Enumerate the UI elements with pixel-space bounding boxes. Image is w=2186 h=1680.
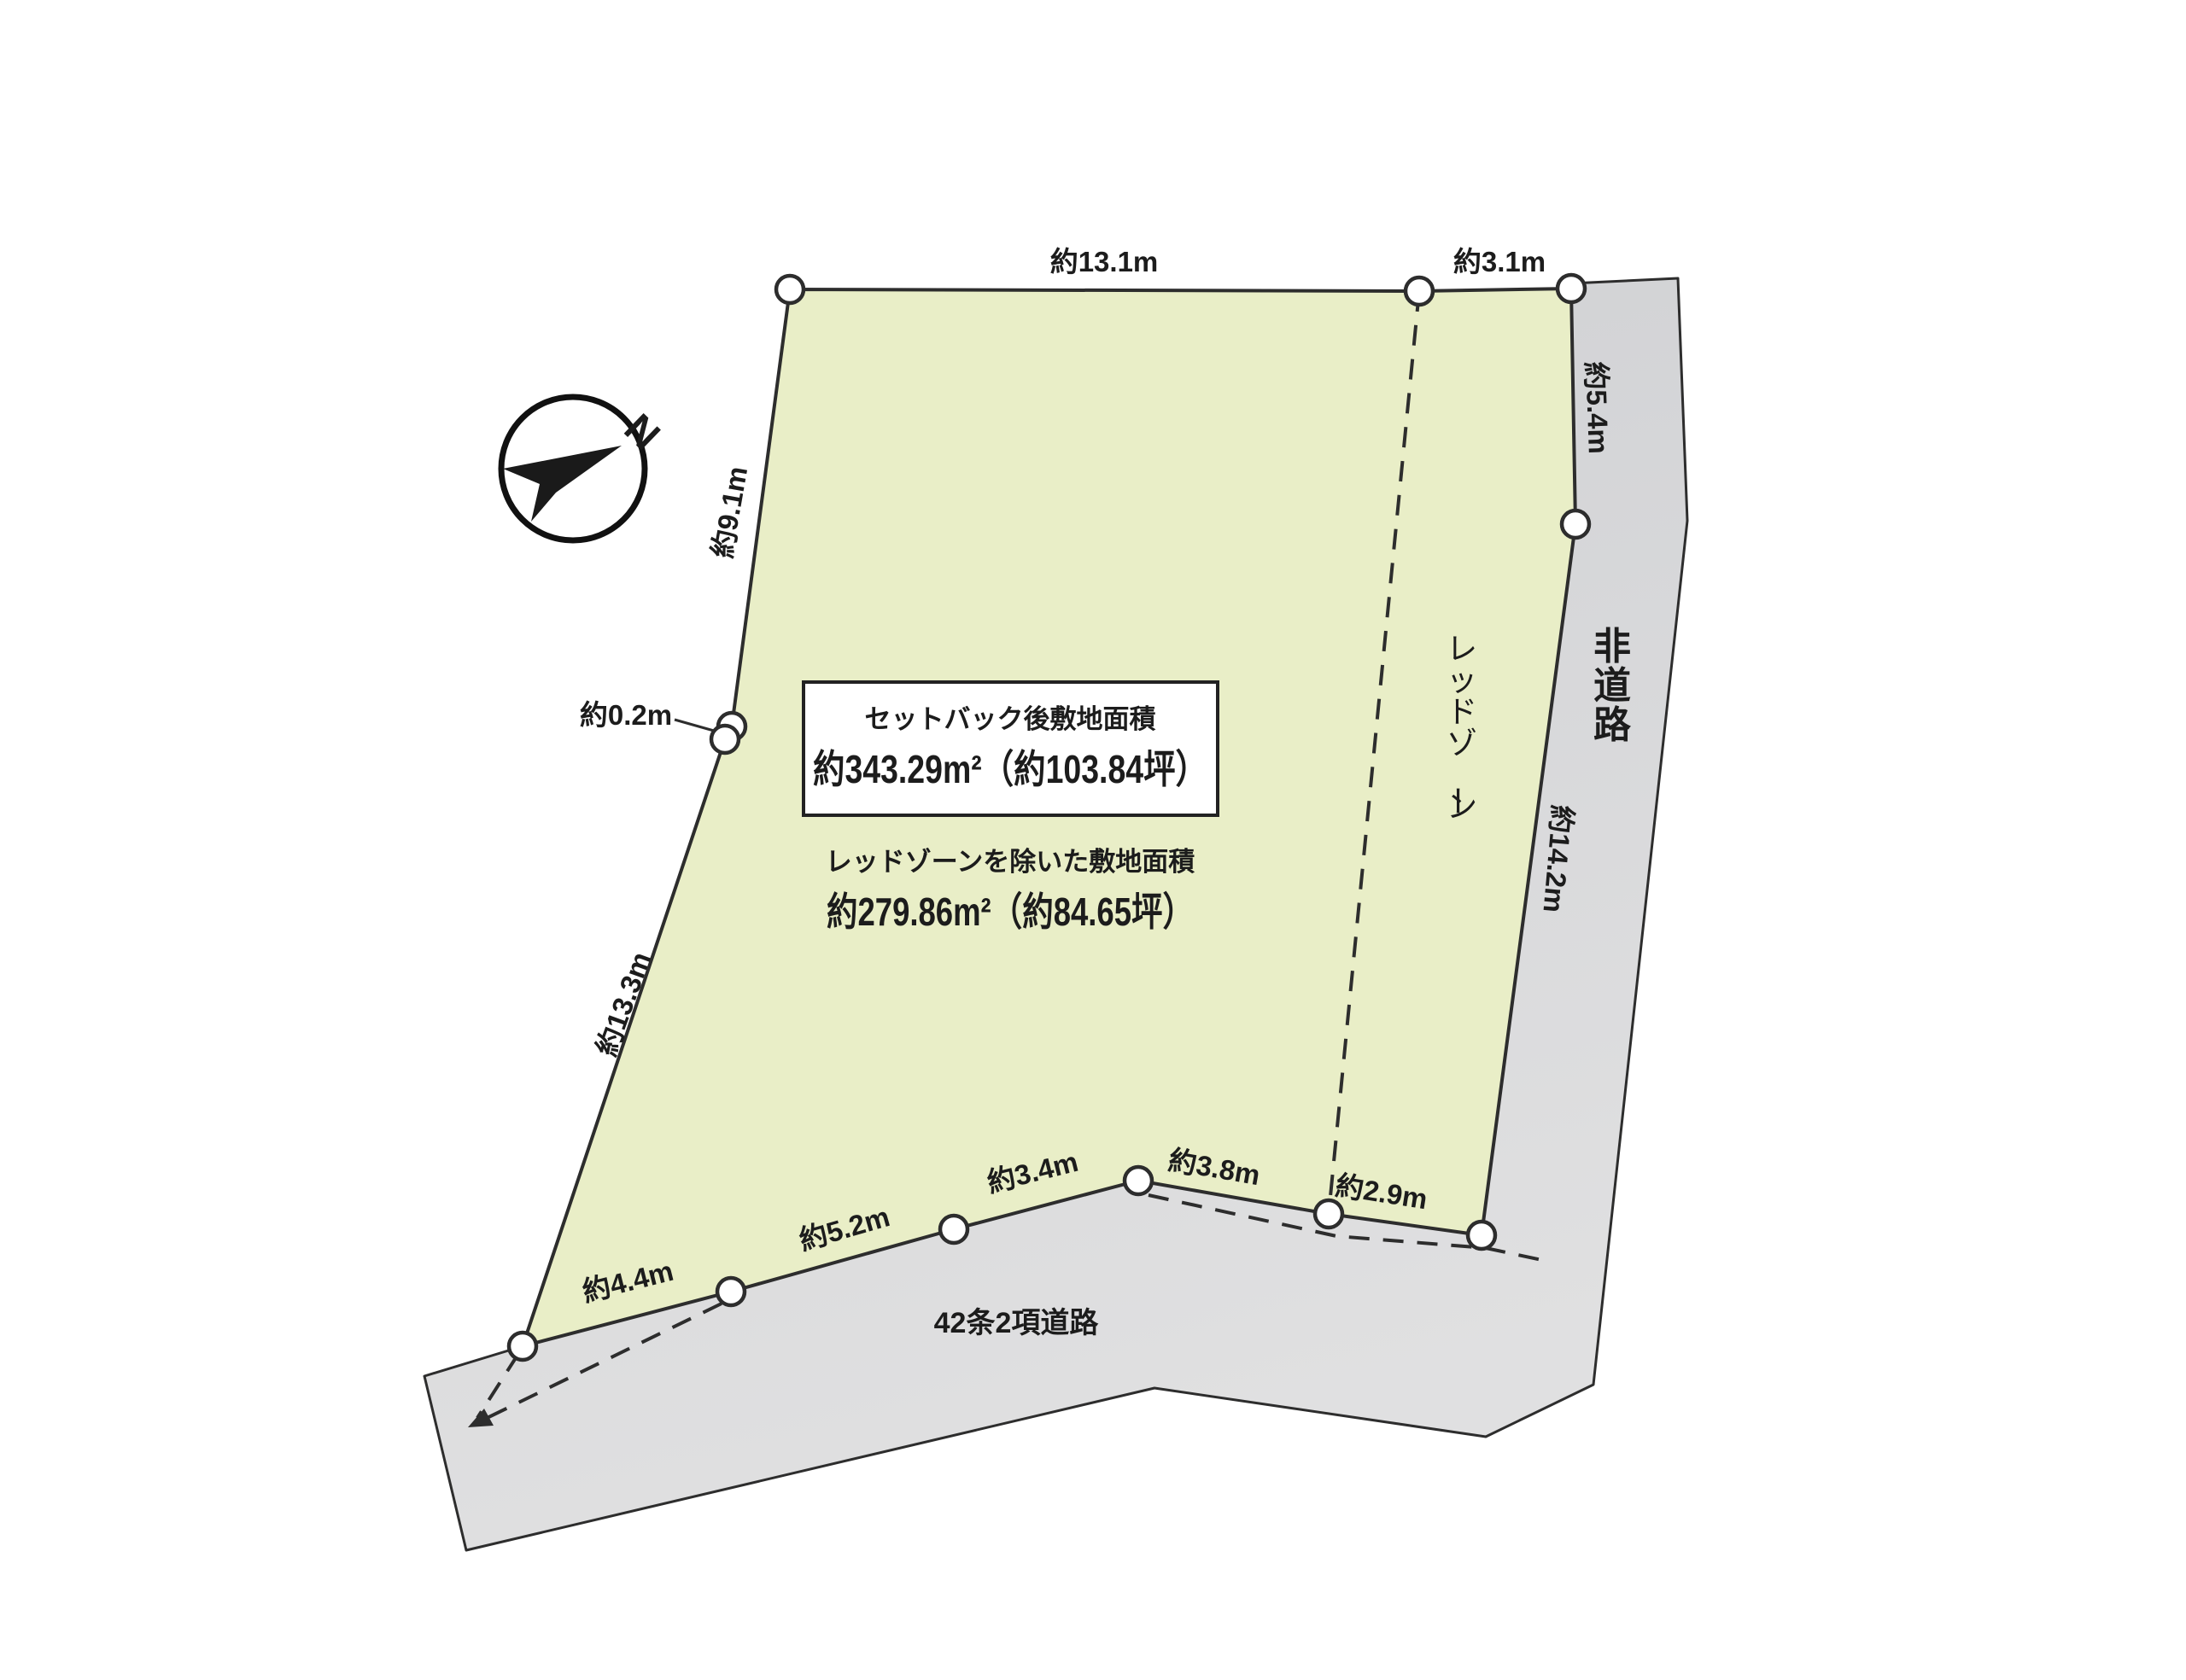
north-compass: N — [501, 397, 669, 540]
dim-label-left-upper: 約9.1m — [706, 464, 753, 561]
site-plan-diagram: 約13.1m 約3.1m 約5.4m 約14.2m 約9.1m 約0.2m 約1… — [0, 0, 2186, 1680]
vertex-marker — [717, 1278, 745, 1305]
redzone-excluded-area-title: レッドゾーンを除いた敷地面積 — [826, 847, 1195, 877]
dim-label-right-upper: 約5.4m — [1580, 361, 1615, 454]
road-label-bottom: 42条2項道路 — [934, 1307, 1100, 1339]
vertex-marker — [509, 1333, 536, 1360]
setback-area-value: 約343.29m²（約103.84坪） — [813, 747, 1207, 791]
vertex-marker — [1468, 1222, 1495, 1249]
vertex-marker — [711, 726, 739, 753]
vertex-marker — [1315, 1200, 1342, 1228]
dim-label-top-main: 約13.1m — [1050, 246, 1159, 277]
vertex-marker — [940, 1216, 967, 1243]
setback-area-title: セットバック後敷地面積 — [865, 704, 1156, 734]
road-label-right: 非道路 — [1593, 626, 1632, 746]
vertex-marker — [1406, 277, 1433, 305]
redzone-excluded-area-value: 約279.86m²（約84.65坪） — [827, 890, 1194, 934]
site-plan-page: 約13.1m 約3.1m 約5.4m 約14.2m 約9.1m 約0.2m 約1… — [0, 0, 2186, 1680]
vertex-marker — [1558, 275, 1585, 302]
vertex-marker — [1562, 510, 1589, 538]
vertex-marker — [776, 276, 804, 303]
vertex-marker — [1125, 1167, 1152, 1194]
dim-label-top-right: 約3.1m — [1453, 246, 1546, 277]
dim-label-left-jog: 約0.2m — [580, 699, 672, 731]
